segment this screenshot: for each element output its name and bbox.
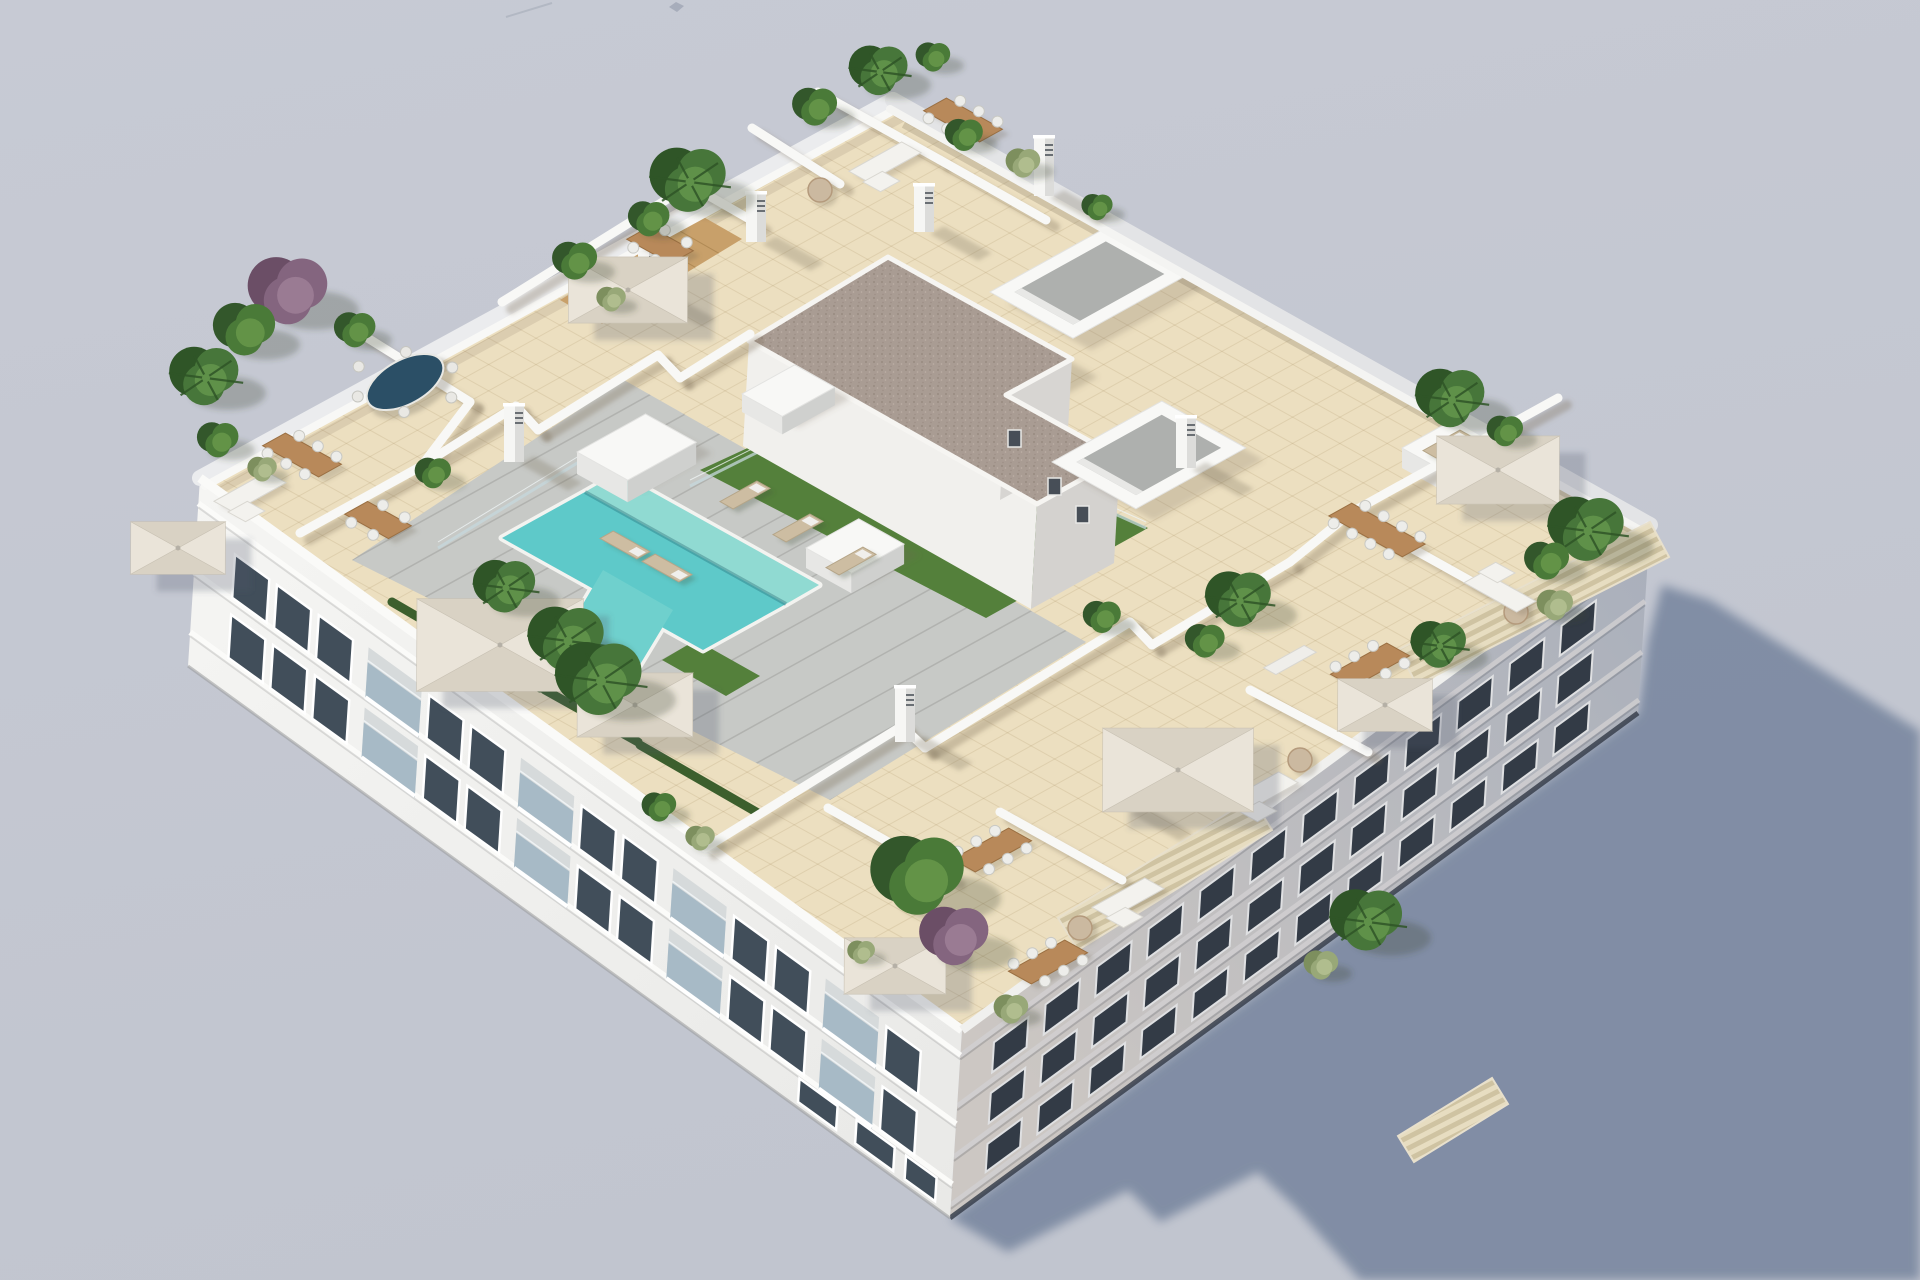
parasol-pole bbox=[1176, 768, 1181, 773]
chair bbox=[281, 458, 292, 469]
parasol-pole bbox=[1496, 468, 1501, 473]
chair bbox=[446, 392, 457, 403]
core-window bbox=[1008, 430, 1021, 447]
foliage-highlight bbox=[236, 318, 265, 347]
chair bbox=[984, 864, 995, 875]
foliage-highlight bbox=[945, 924, 977, 956]
chair bbox=[377, 500, 388, 511]
chair bbox=[1360, 500, 1371, 511]
chair bbox=[368, 529, 379, 540]
chimney-cap bbox=[894, 685, 916, 689]
foliage-highlight bbox=[696, 833, 710, 847]
parasol-pole bbox=[176, 546, 181, 551]
round-table bbox=[1288, 748, 1312, 772]
chair bbox=[973, 106, 984, 117]
chair bbox=[1365, 538, 1376, 549]
foliage-highlight bbox=[1541, 553, 1562, 574]
foliage-highlight bbox=[858, 947, 871, 960]
chair bbox=[1396, 521, 1407, 532]
foliage-highlight bbox=[905, 859, 948, 902]
foliage-highlight bbox=[959, 128, 977, 146]
chair bbox=[1058, 965, 1069, 976]
chimney-cap bbox=[503, 403, 525, 407]
chimney-cap bbox=[1175, 415, 1197, 419]
chair bbox=[346, 517, 357, 528]
foliage-highlight bbox=[1200, 634, 1218, 652]
chair bbox=[681, 237, 692, 248]
chair bbox=[1040, 976, 1051, 987]
chair bbox=[1347, 528, 1358, 539]
foliage-highlight bbox=[1093, 202, 1107, 216]
palm-crown bbox=[502, 584, 509, 591]
foliage-highlight bbox=[258, 464, 272, 478]
chair bbox=[399, 406, 410, 417]
scene-svg bbox=[0, 0, 1920, 1280]
foliage-highlight bbox=[607, 294, 621, 308]
palm-crown bbox=[877, 69, 884, 76]
foliage-highlight bbox=[1018, 157, 1034, 173]
round-table bbox=[808, 178, 832, 202]
chair bbox=[923, 113, 934, 124]
chimney-body bbox=[1176, 418, 1187, 468]
palm-crown bbox=[1584, 527, 1593, 536]
chimney-body bbox=[504, 406, 515, 462]
chimney-body bbox=[914, 186, 925, 232]
chair bbox=[262, 448, 273, 459]
parasol-pole bbox=[893, 964, 898, 969]
chair bbox=[1002, 853, 1013, 864]
chair bbox=[312, 441, 323, 452]
chair bbox=[1378, 511, 1389, 522]
chimney-body bbox=[895, 688, 906, 742]
chair bbox=[1330, 661, 1341, 672]
chair bbox=[1383, 549, 1394, 560]
foliage-highlight bbox=[928, 51, 944, 67]
chimney-cap bbox=[913, 183, 935, 187]
palm-crown bbox=[1236, 597, 1244, 605]
parasol-pole bbox=[626, 288, 631, 293]
chimney-body-shade bbox=[515, 406, 524, 462]
chair bbox=[1367, 640, 1378, 651]
chair bbox=[1349, 651, 1360, 662]
chair bbox=[1380, 668, 1391, 679]
core-window bbox=[1076, 506, 1089, 523]
chimney-cap bbox=[1033, 135, 1055, 139]
render-stage bbox=[0, 0, 1920, 1280]
foliage-highlight bbox=[277, 277, 314, 314]
chair bbox=[989, 825, 1000, 836]
palm-crown bbox=[596, 676, 606, 686]
foliage-highlight bbox=[654, 801, 670, 817]
chair bbox=[971, 836, 982, 847]
parasol-pole bbox=[1383, 703, 1388, 708]
foliage-highlight bbox=[643, 212, 662, 231]
palm-crown bbox=[564, 637, 573, 646]
palm-crown bbox=[1448, 396, 1456, 404]
foliage-highlight bbox=[1550, 599, 1567, 616]
chair bbox=[1328, 518, 1339, 529]
chair bbox=[399, 512, 410, 523]
parasol bbox=[1103, 728, 1280, 829]
chair bbox=[400, 347, 411, 358]
chair bbox=[447, 362, 458, 373]
chair bbox=[1077, 955, 1088, 966]
chair bbox=[352, 391, 363, 402]
foliage-highlight bbox=[1097, 610, 1115, 628]
palm-crown bbox=[1437, 643, 1443, 649]
chair bbox=[294, 430, 305, 441]
parasol-pole bbox=[498, 643, 503, 648]
foliage-highlight bbox=[349, 323, 368, 342]
foliage-highlight bbox=[428, 467, 445, 484]
chair bbox=[331, 451, 342, 462]
palm-crown bbox=[202, 374, 210, 382]
foliage-highlight bbox=[809, 99, 830, 120]
chair bbox=[1399, 658, 1410, 669]
chair bbox=[299, 469, 310, 480]
chair bbox=[353, 361, 364, 372]
foliage-highlight bbox=[569, 253, 590, 274]
foliage-highlight bbox=[1006, 1003, 1022, 1019]
foliage-highlight bbox=[1500, 425, 1517, 442]
chair bbox=[1045, 937, 1056, 948]
palm-crown bbox=[1364, 918, 1372, 926]
chair bbox=[992, 116, 1003, 127]
core-window bbox=[1048, 478, 1061, 495]
chair bbox=[955, 95, 966, 106]
chair bbox=[1027, 948, 1038, 959]
chair bbox=[1415, 531, 1426, 542]
foliage-highlight bbox=[1316, 959, 1332, 975]
chair bbox=[628, 242, 639, 253]
round-table bbox=[1068, 916, 1092, 940]
chimney-body-shade bbox=[906, 688, 915, 742]
palm-crown bbox=[686, 178, 695, 187]
chair bbox=[1021, 843, 1032, 854]
foliage-highlight bbox=[212, 433, 231, 452]
